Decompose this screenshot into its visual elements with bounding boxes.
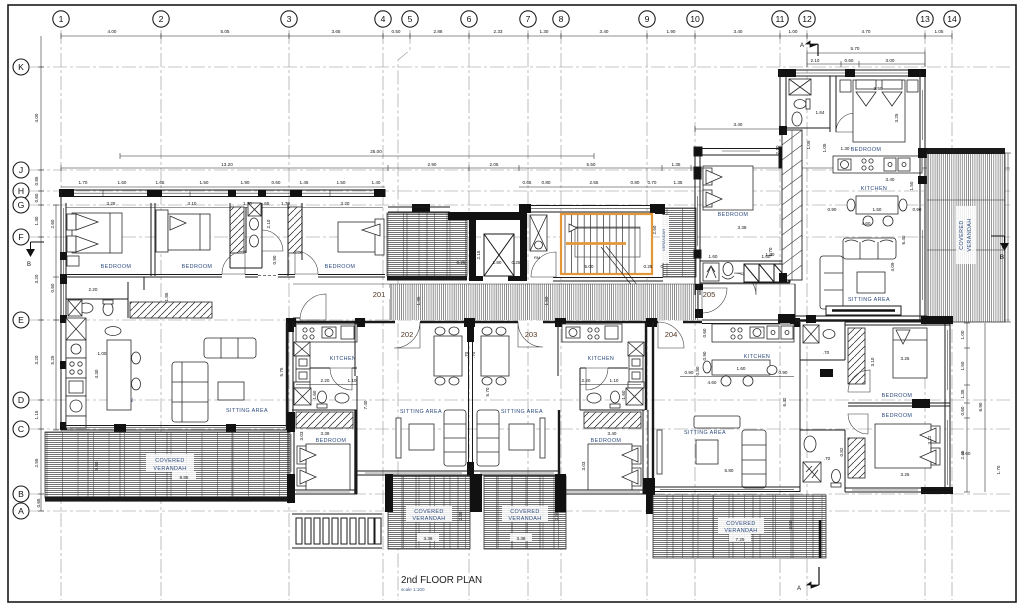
svg-text:13: 13 (920, 14, 930, 24)
svg-text:5.80: 5.80 (725, 468, 734, 473)
svg-text:1.30: 1.30 (34, 216, 39, 225)
svg-text:7.25: 7.25 (736, 537, 745, 542)
svg-text:BEDROOM: BEDROOM (591, 438, 622, 444)
svg-text:203: 203 (525, 330, 538, 339)
svg-text:scale 1:100: scale 1:100 (401, 587, 425, 592)
svg-text:COVERED: COVERED (155, 458, 184, 464)
svg-text:VERANDAH: VERANDAH (724, 528, 757, 534)
svg-text:0.60: 0.60 (960, 406, 965, 415)
svg-text:1.05: 1.05 (935, 29, 944, 34)
svg-text:3.50: 3.50 (874, 86, 883, 91)
svg-text:1.40: 1.40 (372, 180, 381, 185)
svg-text:KITCHEN: KITCHEN (744, 354, 770, 360)
svg-text:3.22: 3.22 (927, 435, 932, 444)
svg-text:2.90: 2.90 (428, 162, 437, 167)
svg-text:1.90: 1.90 (241, 180, 250, 185)
svg-text:4.70: 4.70 (862, 29, 871, 34)
svg-text:3.38: 3.38 (517, 536, 526, 541)
svg-text:1.70: 1.70 (768, 247, 773, 256)
svg-text:VERANDAH: VERANDAH (661, 229, 666, 251)
svg-text:0.85: 0.85 (34, 176, 39, 185)
svg-text:1.70: 1.70 (243, 201, 252, 206)
svg-text:.70: .70 (823, 350, 830, 355)
svg-text:0.80: 0.80 (631, 180, 640, 185)
svg-text:0.90: 0.90 (779, 370, 788, 375)
svg-text:.70: .70 (824, 456, 831, 461)
svg-text:8: 8 (559, 14, 564, 24)
svg-text:3.38: 3.38 (424, 536, 433, 541)
svg-text:2.55: 2.55 (590, 180, 599, 185)
svg-text:3: 3 (287, 14, 292, 24)
svg-text:1.60: 1.60 (312, 390, 317, 399)
svg-text:KITCHEN: KITCHEN (588, 356, 614, 362)
svg-text:1.70: 1.70 (996, 465, 1001, 474)
svg-text:3.25: 3.25 (901, 356, 910, 361)
svg-text:0.82: 0.82 (839, 447, 844, 456)
svg-text:10: 10 (690, 14, 700, 24)
svg-text:0.70: 0.70 (648, 180, 657, 185)
svg-text:0.80: 0.80 (542, 180, 551, 185)
svg-text:0.50: 0.50 (392, 29, 401, 34)
svg-text:2.15: 2.15 (476, 250, 481, 259)
svg-text:6.42: 6.42 (782, 397, 787, 406)
svg-text:3.40: 3.40 (608, 431, 617, 436)
svg-text:G: G (18, 200, 25, 210)
svg-text:4.30: 4.30 (94, 369, 99, 378)
svg-text:5.05: 5.05 (221, 29, 230, 34)
svg-text:1.64: 1.64 (816, 110, 825, 115)
svg-text:6.40: 6.40 (901, 235, 906, 244)
svg-text:2.50: 2.50 (554, 511, 559, 520)
svg-text:COVERED: COVERED (414, 509, 443, 515)
svg-text:2.50: 2.50 (458, 511, 463, 520)
svg-text:SITTING AREA: SITTING AREA (848, 297, 890, 303)
svg-text:4.00: 4.00 (108, 29, 117, 34)
svg-text:0.25: 0.25 (457, 260, 466, 265)
svg-text:2.10: 2.10 (266, 219, 271, 228)
svg-text:VERANDAH: VERANDAH (412, 516, 445, 522)
svg-text:5.00: 5.00 (585, 264, 594, 269)
svg-text:SITTING AREA: SITTING AREA (501, 409, 543, 415)
svg-text:3.10: 3.10 (188, 201, 197, 206)
svg-text:3.40: 3.40 (600, 29, 609, 34)
svg-text:0.90: 0.90 (702, 351, 707, 360)
svg-text:1.90: 1.90 (667, 29, 676, 34)
svg-text:A: A (797, 586, 801, 592)
svg-text:202: 202 (401, 330, 414, 339)
svg-text:2.33: 2.33 (494, 29, 503, 34)
svg-text:3.38: 3.38 (738, 225, 747, 230)
svg-text:2.50: 2.50 (652, 225, 657, 234)
svg-text:BEDROOM: BEDROOM (882, 393, 913, 399)
svg-text:2.20: 2.20 (321, 378, 330, 383)
svg-text:.70: .70 (471, 351, 476, 358)
svg-text:0.60: 0.60 (34, 193, 39, 202)
svg-text:201: 201 (373, 290, 386, 299)
svg-text:1.65: 1.65 (156, 180, 165, 185)
svg-text:1.35: 1.35 (674, 180, 683, 185)
svg-text:1.00: 1.00 (789, 29, 798, 34)
svg-text:VERANDAH: VERANDAH (153, 466, 186, 472)
svg-text:14: 14 (947, 14, 957, 24)
svg-text:3.40: 3.40 (886, 177, 895, 182)
svg-text:1.60: 1.60 (709, 254, 718, 259)
svg-text:3.25: 3.25 (107, 201, 116, 206)
svg-text:1.35: 1.35 (960, 389, 965, 398)
svg-text:4.60: 4.60 (708, 380, 717, 385)
svg-text:4.60: 4.60 (862, 221, 871, 226)
svg-text:SITTING AREA: SITTING AREA (400, 409, 442, 415)
svg-text:0.90: 0.90 (828, 207, 837, 212)
svg-text:6: 6 (467, 14, 472, 24)
svg-text:1: 1 (59, 14, 64, 24)
svg-text:A: A (18, 506, 24, 516)
svg-text:3.40: 3.40 (734, 29, 743, 34)
svg-text:1.50: 1.50 (200, 180, 209, 185)
svg-text:2.88: 2.88 (434, 29, 443, 34)
svg-text:F: F (18, 232, 23, 242)
svg-text:1.50: 1.50 (544, 296, 549, 305)
svg-text:VERANDAH: VERANDAH (508, 516, 541, 522)
svg-text:0.90: 0.90 (685, 370, 694, 375)
svg-text:9: 9 (645, 14, 650, 24)
svg-text:3.10: 3.10 (870, 357, 875, 366)
svg-text:E: E (18, 315, 24, 325)
svg-text:0.60: 0.60 (272, 180, 281, 185)
svg-text:13.20: 13.20 (221, 162, 233, 167)
svg-text:1.50: 1.50 (337, 180, 346, 185)
svg-text:1.50: 1.50 (873, 207, 882, 212)
svg-text:BEDROOM: BEDROOM (325, 264, 356, 270)
svg-text:3.20: 3.20 (34, 355, 39, 364)
svg-text:RM: RM (534, 255, 540, 260)
svg-text:J: J (19, 165, 23, 175)
svg-text:7: 7 (526, 14, 531, 24)
svg-text:1.60: 1.60 (737, 366, 746, 371)
svg-text:1.05: 1.05 (806, 140, 811, 149)
svg-text:1.10: 1.10 (610, 378, 619, 383)
svg-text:1.70: 1.70 (281, 201, 290, 206)
svg-text:1.60: 1.60 (621, 390, 626, 399)
svg-text:1.35: 1.35 (672, 162, 681, 167)
svg-text:2.10: 2.10 (811, 58, 820, 63)
svg-text:3.03: 3.03 (581, 461, 586, 470)
svg-text:1.80: 1.80 (493, 260, 502, 265)
svg-text:3.03: 3.03 (299, 431, 304, 440)
svg-text:1.70: 1.70 (79, 180, 88, 185)
svg-text:SITTING AREA: SITTING AREA (684, 430, 726, 436)
svg-text:2nd FLOOR PLAN: 2nd FLOOR PLAN (401, 575, 482, 586)
svg-text:3.65: 3.65 (332, 29, 341, 34)
svg-text:1.50: 1.50 (960, 361, 965, 370)
svg-text:204: 204 (665, 330, 678, 339)
svg-text:2.20: 2.20 (89, 287, 98, 292)
svg-text:.65: .65 (263, 201, 270, 206)
svg-text:KITCHEN: KITCHEN (330, 356, 356, 362)
svg-text:5.50: 5.50 (587, 162, 596, 167)
svg-text:2.60: 2.60 (50, 219, 55, 228)
svg-text:1.85: 1.85 (164, 292, 169, 301)
svg-text:4.09: 4.09 (890, 262, 895, 271)
svg-text:COVERED: COVERED (726, 521, 755, 527)
svg-text:H: H (18, 186, 24, 196)
svg-text:3.25: 3.25 (901, 472, 910, 477)
svg-text:1.50: 1.50 (909, 181, 914, 190)
svg-text:12: 12 (802, 14, 812, 24)
svg-text:5: 5 (408, 14, 413, 24)
svg-text:A: A (800, 43, 804, 49)
svg-text:1.15: 1.15 (34, 410, 39, 419)
svg-text:2: 2 (159, 14, 164, 24)
svg-text:0.25: 0.25 (644, 264, 653, 269)
svg-text:1.30: 1.30 (841, 146, 850, 151)
svg-text:11: 11 (776, 14, 785, 24)
svg-text:K: K (18, 62, 24, 72)
svg-text:1.30: 1.30 (540, 29, 549, 34)
svg-text:1.50: 1.50 (118, 180, 127, 185)
svg-text:5.70: 5.70 (485, 387, 490, 396)
svg-text:3.60: 3.60 (962, 451, 971, 456)
svg-text:9.80: 9.80 (94, 461, 99, 470)
svg-text:4.00: 4.00 (34, 113, 39, 122)
svg-text:0.65: 0.65 (523, 180, 532, 185)
svg-text:3.20: 3.20 (34, 274, 39, 283)
svg-text:BEDROOM: BEDROOM (851, 147, 882, 153)
svg-text:9.85: 9.85 (180, 475, 189, 480)
svg-text:BEDROOM: BEDROOM (718, 212, 749, 218)
svg-text:0.60: 0.60 (50, 283, 55, 292)
svg-text:3.40: 3.40 (734, 122, 743, 127)
svg-text:0.25: 0.25 (512, 260, 521, 265)
svg-text:BEDROOM: BEDROOM (101, 264, 132, 270)
svg-text:1.00: 1.00 (960, 330, 965, 339)
svg-text:3.39: 3.39 (321, 431, 330, 436)
svg-text:1.35: 1.35 (416, 296, 421, 305)
svg-text:BEDROOM: BEDROOM (882, 413, 913, 419)
svg-text:SITTING AREA: SITTING AREA (226, 408, 268, 414)
svg-text:D: D (18, 395, 24, 405)
svg-text:1.00: 1.00 (98, 351, 107, 356)
svg-text:205: 205 (703, 290, 716, 299)
svg-text:B: B (27, 262, 31, 268)
svg-text:5.25: 5.25 (50, 355, 55, 364)
svg-text:2.50: 2.50 (788, 520, 793, 529)
svg-text:0.80: 0.80 (695, 366, 700, 375)
svg-text:KITCHEN: KITCHEN (861, 186, 887, 192)
svg-text:2.05: 2.05 (490, 162, 499, 167)
svg-text:0.90: 0.90 (272, 255, 277, 264)
svg-text:4: 4 (381, 14, 386, 24)
svg-text:COVERED: COVERED (959, 220, 965, 249)
svg-text:1.05: 1.05 (822, 143, 827, 152)
svg-text:VERANDAH: VERANDAH (967, 218, 973, 251)
svg-text:3.20: 3.20 (341, 201, 350, 206)
svg-text:3.00: 3.00 (886, 58, 895, 63)
svg-text:1.45: 1.45 (300, 180, 309, 185)
svg-text:5.75: 5.75 (279, 367, 284, 376)
svg-text:0.60: 0.60 (845, 58, 854, 63)
svg-text:5.70: 5.70 (851, 46, 860, 51)
svg-text:COVERED: COVERED (510, 509, 539, 515)
svg-text:B: B (1000, 255, 1004, 261)
svg-text:BEDROOM: BEDROOM (316, 438, 347, 444)
svg-text:7.40: 7.40 (363, 400, 368, 409)
svg-text:3.25: 3.25 (894, 113, 899, 122)
svg-text:6.90: 6.90 (978, 402, 983, 411)
svg-text:2.10: 2.10 (775, 145, 780, 154)
svg-text:0.60: 0.60 (702, 328, 707, 337)
svg-text:25.00: 25.00 (370, 149, 382, 154)
svg-text:0.90: 0.90 (913, 207, 922, 212)
svg-text:BEDROOM: BEDROOM (182, 264, 213, 270)
svg-text:B: B (18, 489, 24, 499)
svg-text:0.65: 0.65 (36, 498, 41, 507)
svg-text:C: C (18, 424, 24, 434)
svg-text:2.55: 2.55 (34, 458, 39, 467)
